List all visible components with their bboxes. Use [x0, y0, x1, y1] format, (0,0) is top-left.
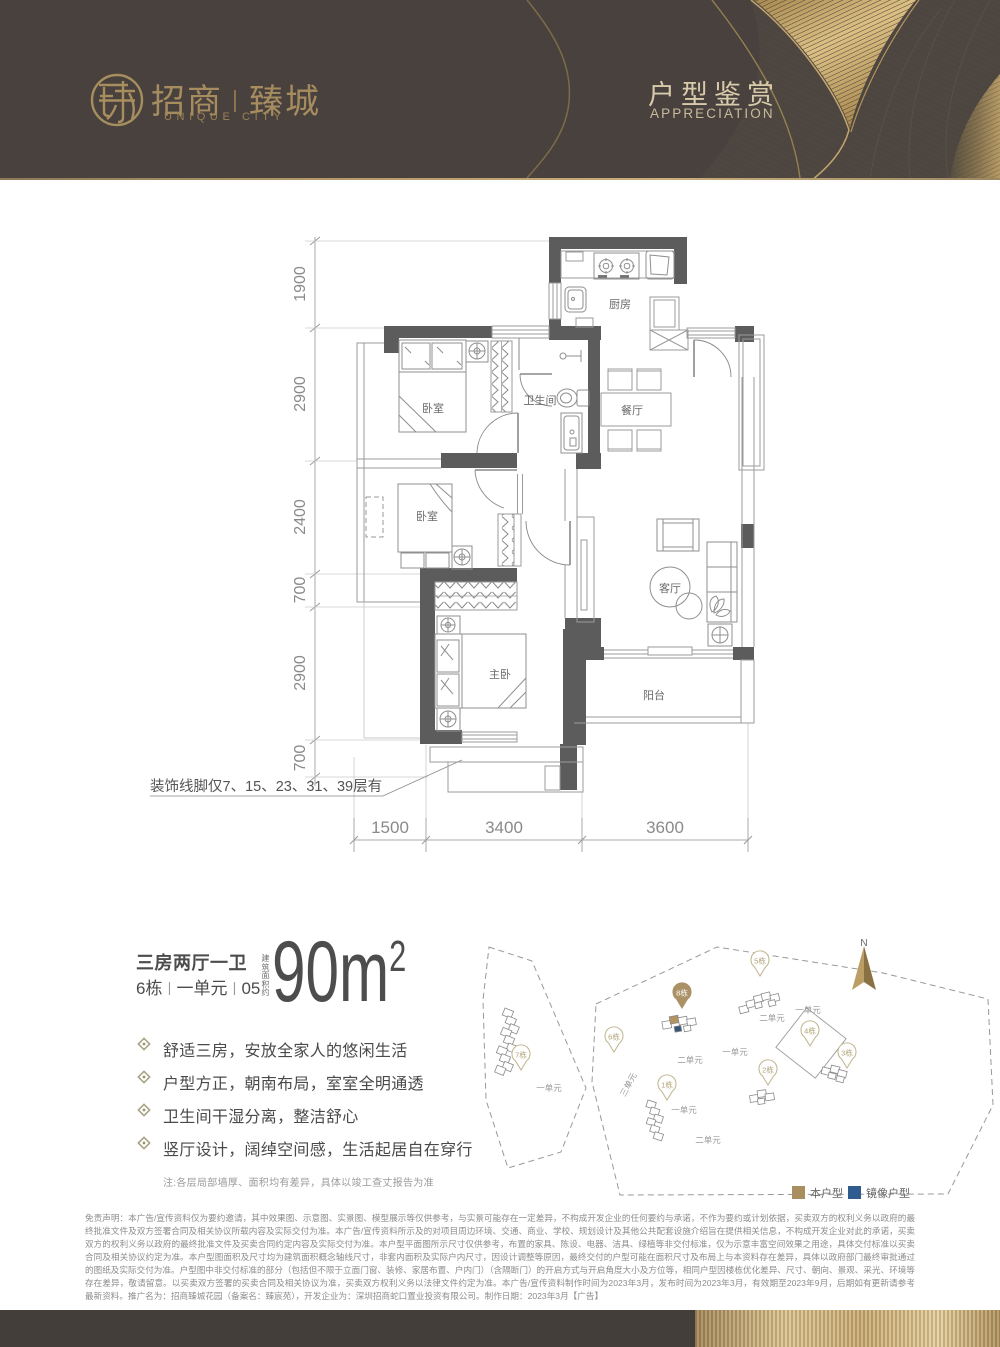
- svg-text:镜像户型: 镜像户型: [866, 1186, 910, 1200]
- svg-text:700: 700: [292, 745, 309, 772]
- svg-text:卧室: 卧室: [422, 401, 444, 415]
- svg-text:700: 700: [292, 577, 309, 604]
- svg-text:二单元: 二单元: [677, 1055, 703, 1065]
- svg-text:8栋: 8栋: [676, 988, 688, 998]
- svg-text:一单元: 一单元: [795, 1005, 821, 1015]
- svg-text:阳台: 阳台: [643, 688, 665, 702]
- svg-text:一单元: 一单元: [671, 1105, 697, 1115]
- svg-text:餐厅: 餐厅: [621, 403, 643, 417]
- svg-text:1900: 1900: [292, 266, 309, 302]
- svg-text:3600: 3600: [646, 818, 684, 837]
- svg-text:一单元: 一单元: [722, 1047, 748, 1057]
- svg-text:3栋: 3栋: [841, 1048, 853, 1058]
- svg-text:厨房: 厨房: [609, 298, 631, 311]
- svg-text:2900: 2900: [292, 655, 309, 691]
- svg-text:卫生间: 卫生间: [524, 393, 557, 407]
- svg-text:卧室: 卧室: [416, 509, 438, 523]
- svg-text:装饰线脚仅7、15、23、31、39层有: 装饰线脚仅7、15、23、31、39层有: [150, 778, 382, 795]
- svg-text:二单元: 二单元: [695, 1135, 721, 1145]
- svg-text:4栋: 4栋: [804, 1026, 816, 1036]
- svg-text:2400: 2400: [292, 499, 309, 535]
- svg-text:7栋: 7栋: [515, 1050, 527, 1060]
- svg-text:二单元: 二单元: [759, 1013, 785, 1023]
- svg-text:1500: 1500: [371, 818, 409, 837]
- svg-text:客厅: 客厅: [659, 581, 681, 595]
- svg-text:3400: 3400: [485, 818, 523, 837]
- svg-text:主卧: 主卧: [489, 668, 511, 681]
- svg-text:本户型: 本户型: [810, 1186, 843, 1200]
- svg-text:6栋: 6栋: [608, 1032, 620, 1042]
- svg-text:5栋: 5栋: [754, 956, 766, 966]
- svg-text:三单元: 三单元: [618, 1071, 639, 1099]
- svg-text:2栋: 2栋: [762, 1065, 774, 1075]
- svg-text:1栋: 1栋: [661, 1080, 673, 1090]
- svg-text:一单元: 一单元: [536, 1083, 562, 1093]
- svg-text:2900: 2900: [292, 376, 309, 412]
